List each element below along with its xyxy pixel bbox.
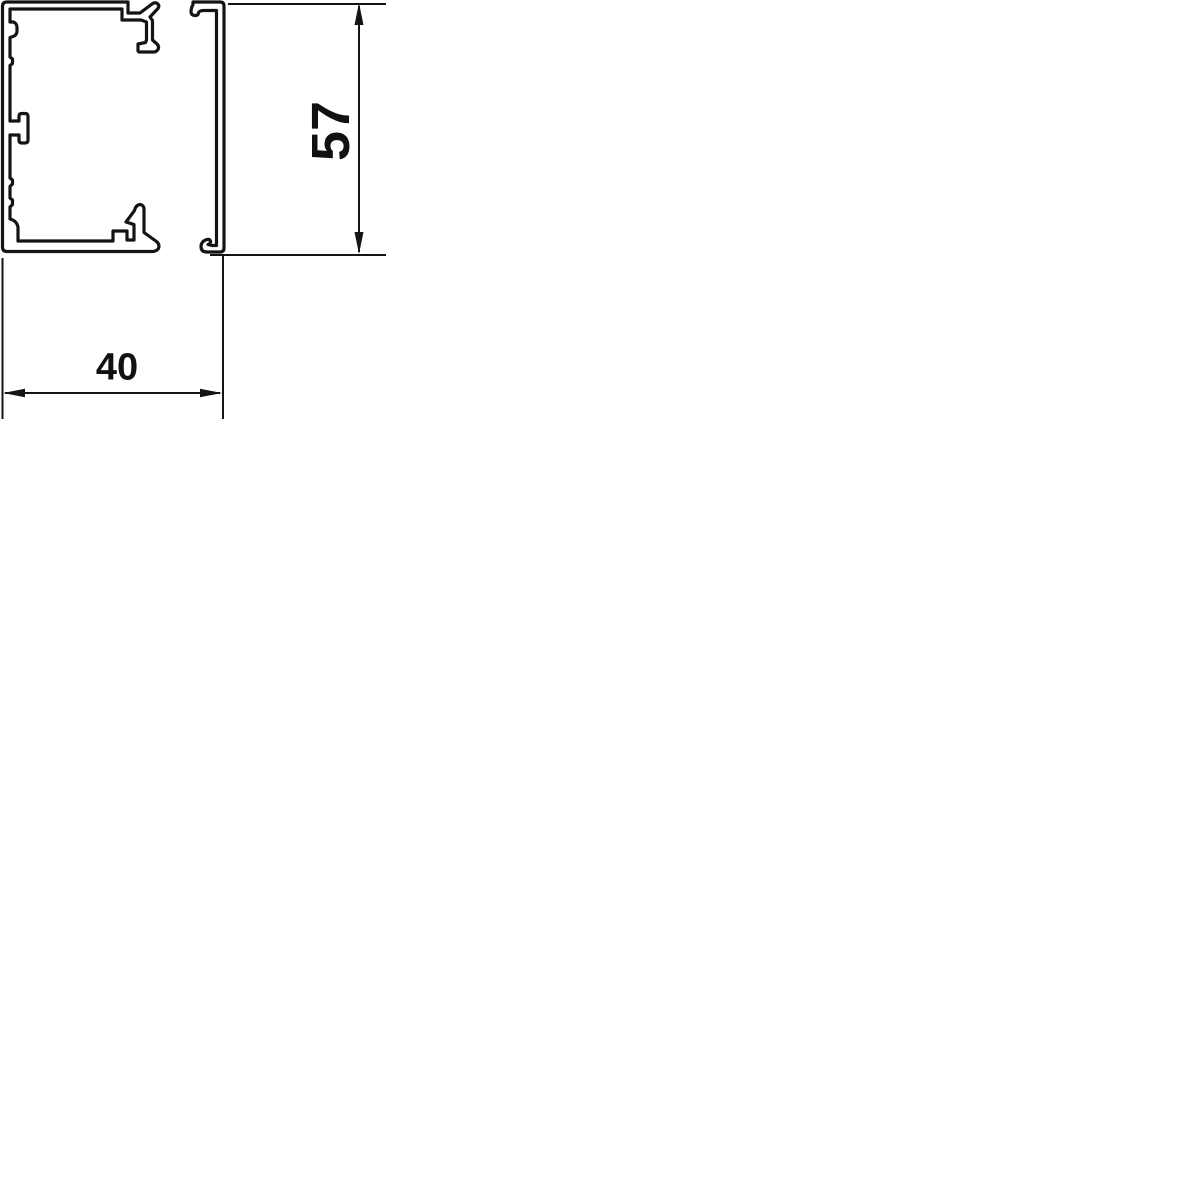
- cover-profile-outline: [191, 2, 224, 252]
- base-profile-outline: [3, 2, 159, 252]
- arrowhead-up-icon: [355, 3, 364, 25]
- arrowhead-left-icon: [3, 389, 25, 397]
- technical-drawing: 57 40: [0, 0, 1200, 1200]
- drawing-canvas: 57 40: [0, 0, 1200, 1200]
- arrowhead-down-icon: [355, 232, 364, 254]
- dimension-width-label: 40: [96, 346, 138, 388]
- dimension-height-label: 57: [301, 101, 361, 161]
- arrowhead-right-icon: [200, 389, 222, 397]
